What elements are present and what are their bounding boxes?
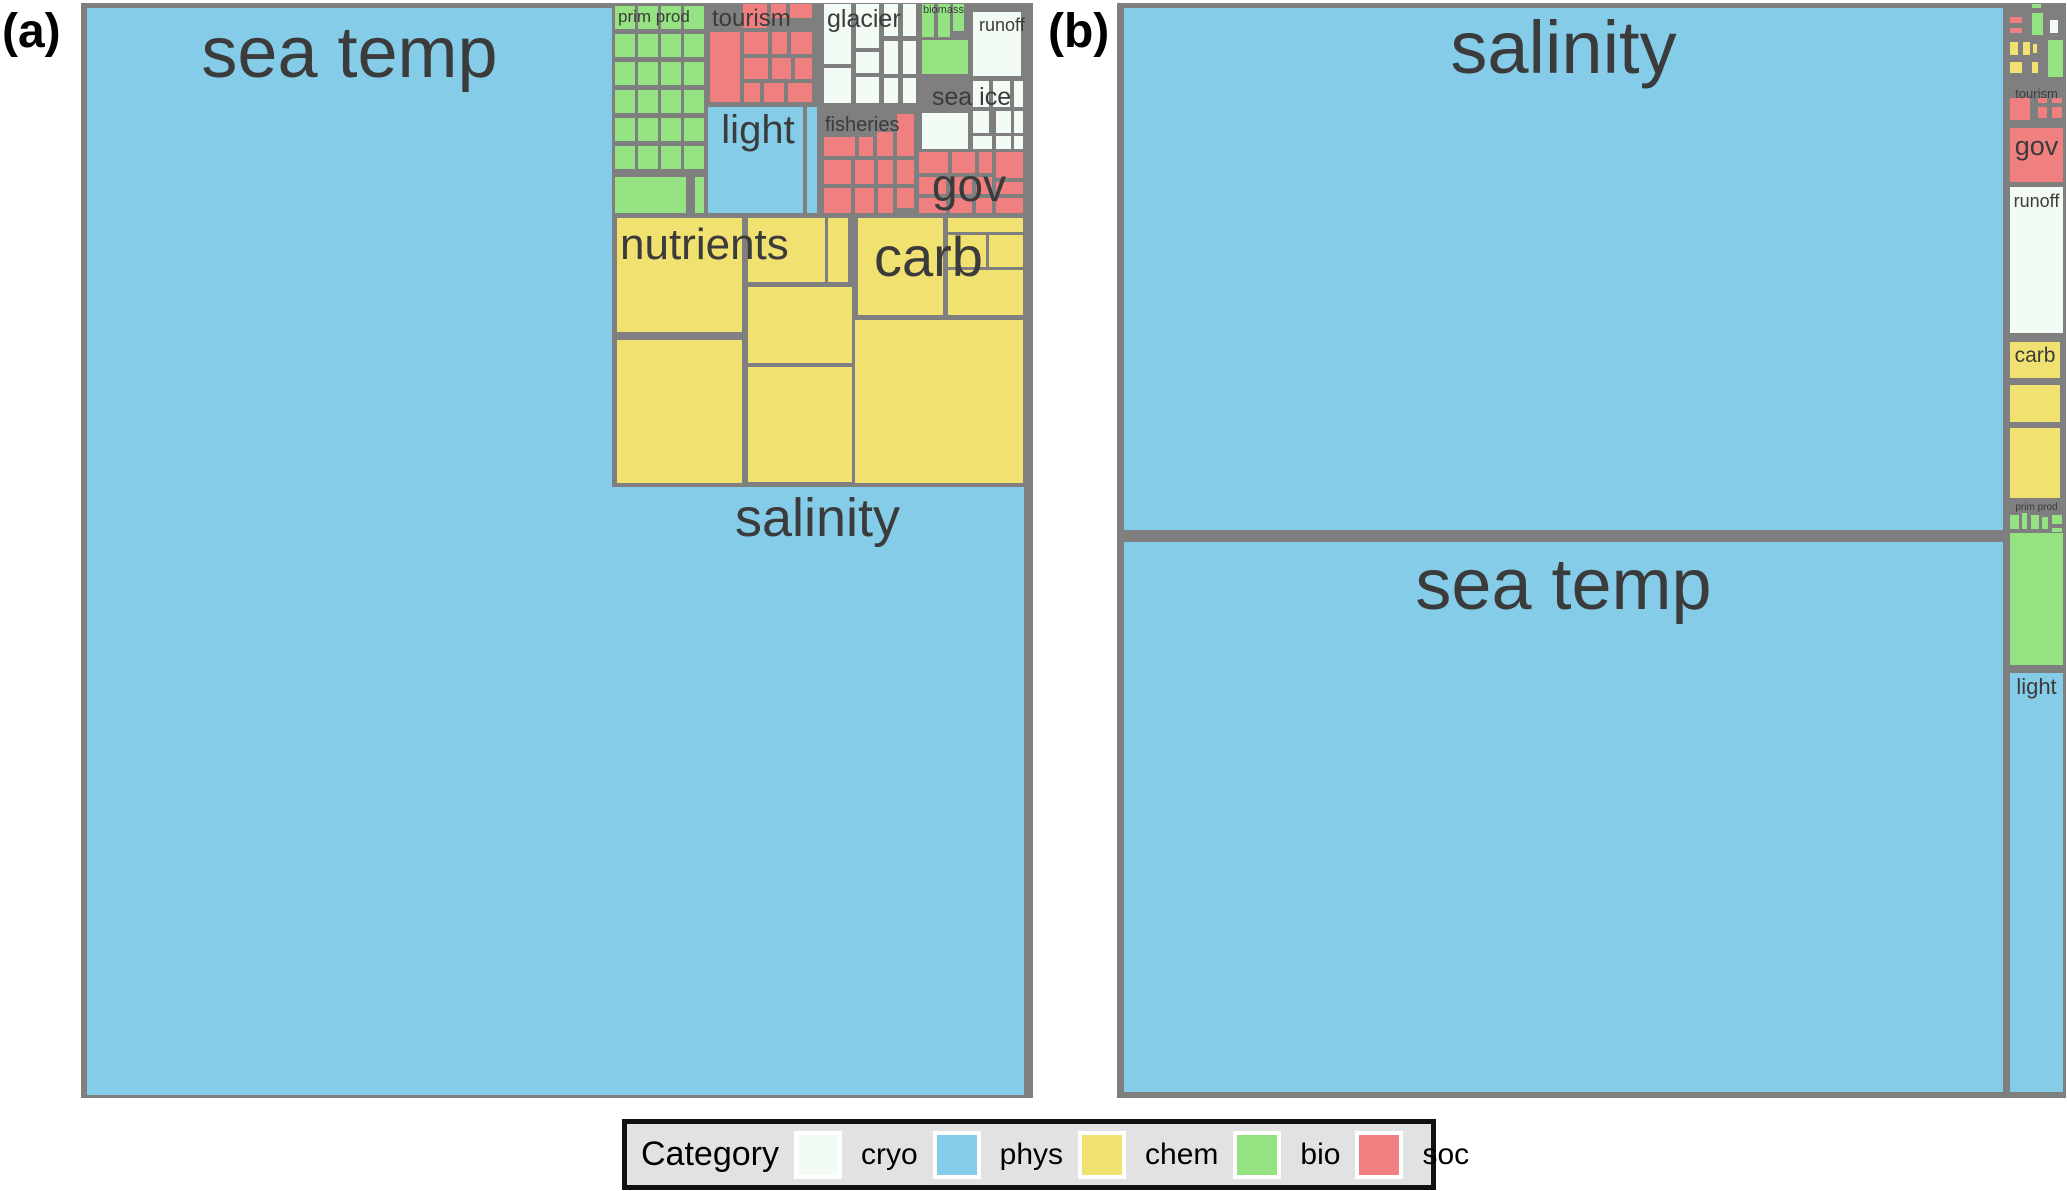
unlabeled-chem-tile bbox=[2023, 42, 2030, 55]
carb-tile bbox=[2010, 428, 2060, 498]
tourism-tile bbox=[710, 32, 740, 102]
tourism-tile bbox=[744, 58, 768, 79]
sea-ice-tile bbox=[973, 111, 989, 133]
unlabeled-soc-tile bbox=[2010, 28, 2022, 33]
carb-label: carb bbox=[2010, 345, 2060, 366]
fisheries-tile bbox=[878, 160, 893, 184]
glacier-tile bbox=[824, 68, 851, 103]
runoff-label: runoff bbox=[979, 16, 1025, 34]
sea-ice-tile bbox=[973, 136, 992, 149]
runoff-label: runoff bbox=[2010, 192, 2063, 210]
prim-prod-tile bbox=[638, 34, 658, 57]
prim-prod-tile bbox=[2052, 515, 2062, 524]
glacier-tile bbox=[884, 41, 898, 74]
unlabeled-bio-tile bbox=[2048, 40, 2063, 77]
tourism-tile bbox=[2038, 107, 2047, 118]
sea-temp-tile bbox=[87, 8, 612, 1095]
legend: Category cryo phys chem bio soc bbox=[622, 1119, 1436, 1190]
soc-swatch bbox=[1355, 1131, 1403, 1179]
fisheries-tile bbox=[897, 188, 914, 208]
phys-swatch bbox=[933, 1131, 981, 1179]
legend-item-phys: phys bbox=[933, 1131, 1063, 1179]
carb-label: carb bbox=[874, 229, 983, 285]
prim-prod-tile bbox=[661, 146, 681, 169]
fisheries-tile bbox=[878, 188, 893, 213]
tourism-tile bbox=[764, 83, 784, 102]
legend-item-bio: bio bbox=[1233, 1131, 1340, 1179]
salinity-tile bbox=[611, 487, 1024, 1095]
prim-prod-tile bbox=[2031, 515, 2039, 529]
fisheries-tile bbox=[824, 160, 851, 184]
glacier-tile bbox=[903, 78, 916, 103]
nutrients-tile bbox=[617, 340, 742, 483]
tourism-tile bbox=[772, 58, 791, 79]
prim-prod-tile bbox=[684, 62, 704, 85]
nutrients-tile bbox=[748, 367, 852, 482]
sea-ice-tile bbox=[1014, 136, 1023, 149]
prim-prod-tile bbox=[638, 118, 658, 141]
soc-label: soc bbox=[1422, 1138, 1469, 1172]
prim-prod-tile bbox=[2010, 533, 2063, 665]
prim-prod-tile bbox=[2052, 528, 2062, 532]
treemap-panel-a: sea tempsalinitynutrientscarbprim prodto… bbox=[81, 3, 1033, 1098]
nutrients-label: nutrients bbox=[620, 223, 789, 267]
glacier-tile bbox=[884, 78, 898, 103]
fisheries-label: fisheries bbox=[825, 115, 899, 135]
tourism-tile bbox=[2010, 98, 2030, 120]
glacier-tile bbox=[856, 77, 879, 103]
tourism-tile bbox=[2052, 107, 2062, 118]
unlabeled-soc-tile bbox=[2010, 17, 2022, 23]
tourism-tile bbox=[795, 58, 812, 79]
prim-prod-label: prim prod bbox=[2010, 503, 2063, 513]
legend-item-cryo: cryo bbox=[794, 1131, 918, 1179]
prim-prod-tile bbox=[615, 177, 686, 213]
tourism-label: tourism bbox=[2010, 87, 2063, 100]
cryo-label: cryo bbox=[861, 1138, 918, 1172]
bio-swatch bbox=[1233, 1131, 1281, 1179]
fisheries-tile bbox=[897, 114, 914, 156]
fisheries-tile bbox=[897, 160, 914, 184]
unlabeled-bio-tile bbox=[2032, 4, 2041, 8]
chem-swatch bbox=[1078, 1131, 1126, 1179]
phys-label: phys bbox=[1000, 1138, 1063, 1172]
fisheries-tile bbox=[859, 137, 873, 156]
prim-prod-tile bbox=[638, 90, 658, 113]
prim-prod-tile bbox=[2010, 515, 2019, 529]
sea-ice-tile bbox=[996, 111, 1011, 133]
unlabeled-chem-tile bbox=[2010, 62, 2022, 73]
unlabeled-bio-tile bbox=[2032, 13, 2043, 35]
treemap-panel-b: salinitysea templightrunoffcarbprim prod… bbox=[1117, 3, 2066, 1098]
bio-label: bio bbox=[1300, 1138, 1340, 1172]
prim-prod-tile bbox=[638, 146, 658, 169]
prim-prod-tile bbox=[615, 62, 635, 85]
prim-prod-tile bbox=[684, 90, 704, 113]
fisheries-tile bbox=[824, 188, 851, 213]
prim-prod-tile bbox=[615, 34, 635, 57]
tourism-label: tourism bbox=[712, 7, 791, 31]
glacier-tile bbox=[856, 52, 879, 73]
biomass-label: biomass bbox=[923, 5, 964, 16]
prim-prod-tile bbox=[684, 34, 704, 57]
unlabeled-chem-tile bbox=[2033, 44, 2037, 53]
prim-prod-tile bbox=[661, 62, 681, 85]
prim-prod-tile bbox=[2022, 513, 2027, 529]
tourism-tile bbox=[744, 83, 760, 102]
sea-ice-tile bbox=[922, 113, 968, 149]
prim-prod-tile bbox=[695, 177, 704, 213]
legend-title: Category bbox=[641, 1135, 779, 1174]
unlabeled-cryo-tile bbox=[2050, 20, 2058, 33]
salinity-label: salinity bbox=[1124, 11, 2003, 85]
panel-b-tag: (b) bbox=[1048, 8, 1109, 56]
nutrients-tile bbox=[828, 218, 848, 282]
prim-prod-tile bbox=[615, 118, 635, 141]
prim-prod-tile bbox=[661, 118, 681, 141]
light-tile bbox=[2010, 673, 2063, 1092]
panel-a-tag: (a) bbox=[2, 8, 61, 56]
carb-tile bbox=[989, 235, 1023, 267]
unlabeled-chem-tile bbox=[2032, 62, 2038, 73]
fisheries-tile bbox=[855, 188, 874, 213]
prim-prod-tile bbox=[2042, 517, 2048, 529]
prim-prod-tile bbox=[615, 146, 635, 169]
legend-item-soc: soc bbox=[1355, 1131, 1469, 1179]
light-label: light bbox=[708, 110, 808, 150]
tourism-tile bbox=[788, 83, 812, 102]
fisheries-tile bbox=[824, 137, 855, 156]
gov-label: gov bbox=[915, 162, 1023, 208]
salinity-label: salinity bbox=[611, 491, 1024, 545]
prim-prod-tile bbox=[615, 90, 635, 113]
carb-tile bbox=[2010, 385, 2060, 422]
tourism-tile bbox=[790, 4, 812, 18]
prim-prod-tile bbox=[661, 34, 681, 57]
carb-tile bbox=[855, 320, 1023, 483]
fisheries-tile bbox=[855, 160, 874, 184]
chem-label: chem bbox=[1145, 1138, 1218, 1172]
prim-prod-label: prim prod bbox=[618, 8, 690, 25]
glacier-tile bbox=[903, 41, 916, 74]
light-tile bbox=[807, 107, 817, 213]
prim-prod-tile bbox=[684, 146, 704, 169]
sea-temp-label: sea temp bbox=[87, 17, 612, 89]
tourism-tile bbox=[744, 32, 768, 54]
prim-prod-tile bbox=[638, 62, 658, 85]
legend-item-chem: chem bbox=[1078, 1131, 1218, 1179]
nutrients-tile bbox=[748, 287, 852, 363]
light-label: light bbox=[2010, 676, 2063, 698]
sea-ice-label: sea ice bbox=[920, 85, 1023, 110]
sea-ice-tile bbox=[1014, 111, 1023, 133]
prim-prod-tile bbox=[661, 90, 681, 113]
biomass-tile bbox=[922, 40, 968, 74]
prim-prod-tile bbox=[684, 118, 704, 141]
unlabeled-chem-tile bbox=[2010, 42, 2018, 55]
sea-temp-label: sea temp bbox=[1124, 549, 2003, 621]
gov-label: gov bbox=[2010, 133, 2063, 160]
sea-ice-tile bbox=[996, 136, 1011, 149]
glacier-label: glacier bbox=[827, 7, 901, 32]
tourism-tile bbox=[772, 32, 787, 54]
cryo-swatch bbox=[794, 1131, 842, 1179]
tourism-tile bbox=[791, 32, 812, 54]
glacier-tile bbox=[903, 4, 916, 36]
